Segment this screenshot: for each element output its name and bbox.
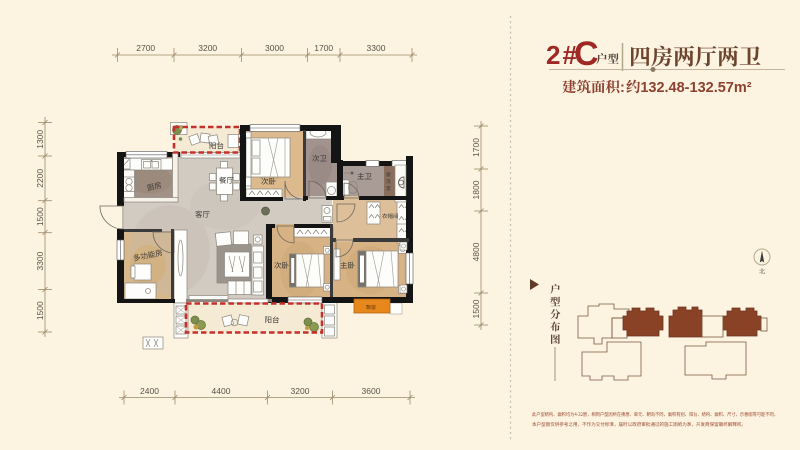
svg-text::: : [620,80,625,96]
svg-text:1800: 1800 [471,180,481,199]
svg-text:3300: 3300 [367,43,386,53]
svg-text:3200: 3200 [291,386,310,396]
svg-text:1500: 1500 [35,301,45,320]
svg-text:C: C [574,35,599,73]
svg-text:3300: 3300 [35,251,45,270]
svg-text:1500: 1500 [471,299,481,318]
svg-text:4800: 4800 [471,242,481,261]
svg-text:3600: 3600 [362,386,381,396]
svg-text:2700: 2700 [136,43,155,53]
svg-text:1300: 1300 [35,130,45,149]
svg-text:1700: 1700 [471,138,481,157]
svg-text:132.48-132.57m²: 132.48-132.57m² [640,80,751,96]
svg-text:1700: 1700 [314,43,333,53]
svg-text:2200: 2200 [35,169,45,188]
svg-text:3200: 3200 [198,43,217,53]
svg-text:1500: 1500 [35,207,45,226]
svg-text:3000: 3000 [265,43,284,53]
svg-text:2400: 2400 [140,386,159,396]
svg-text:4400: 4400 [212,386,231,396]
